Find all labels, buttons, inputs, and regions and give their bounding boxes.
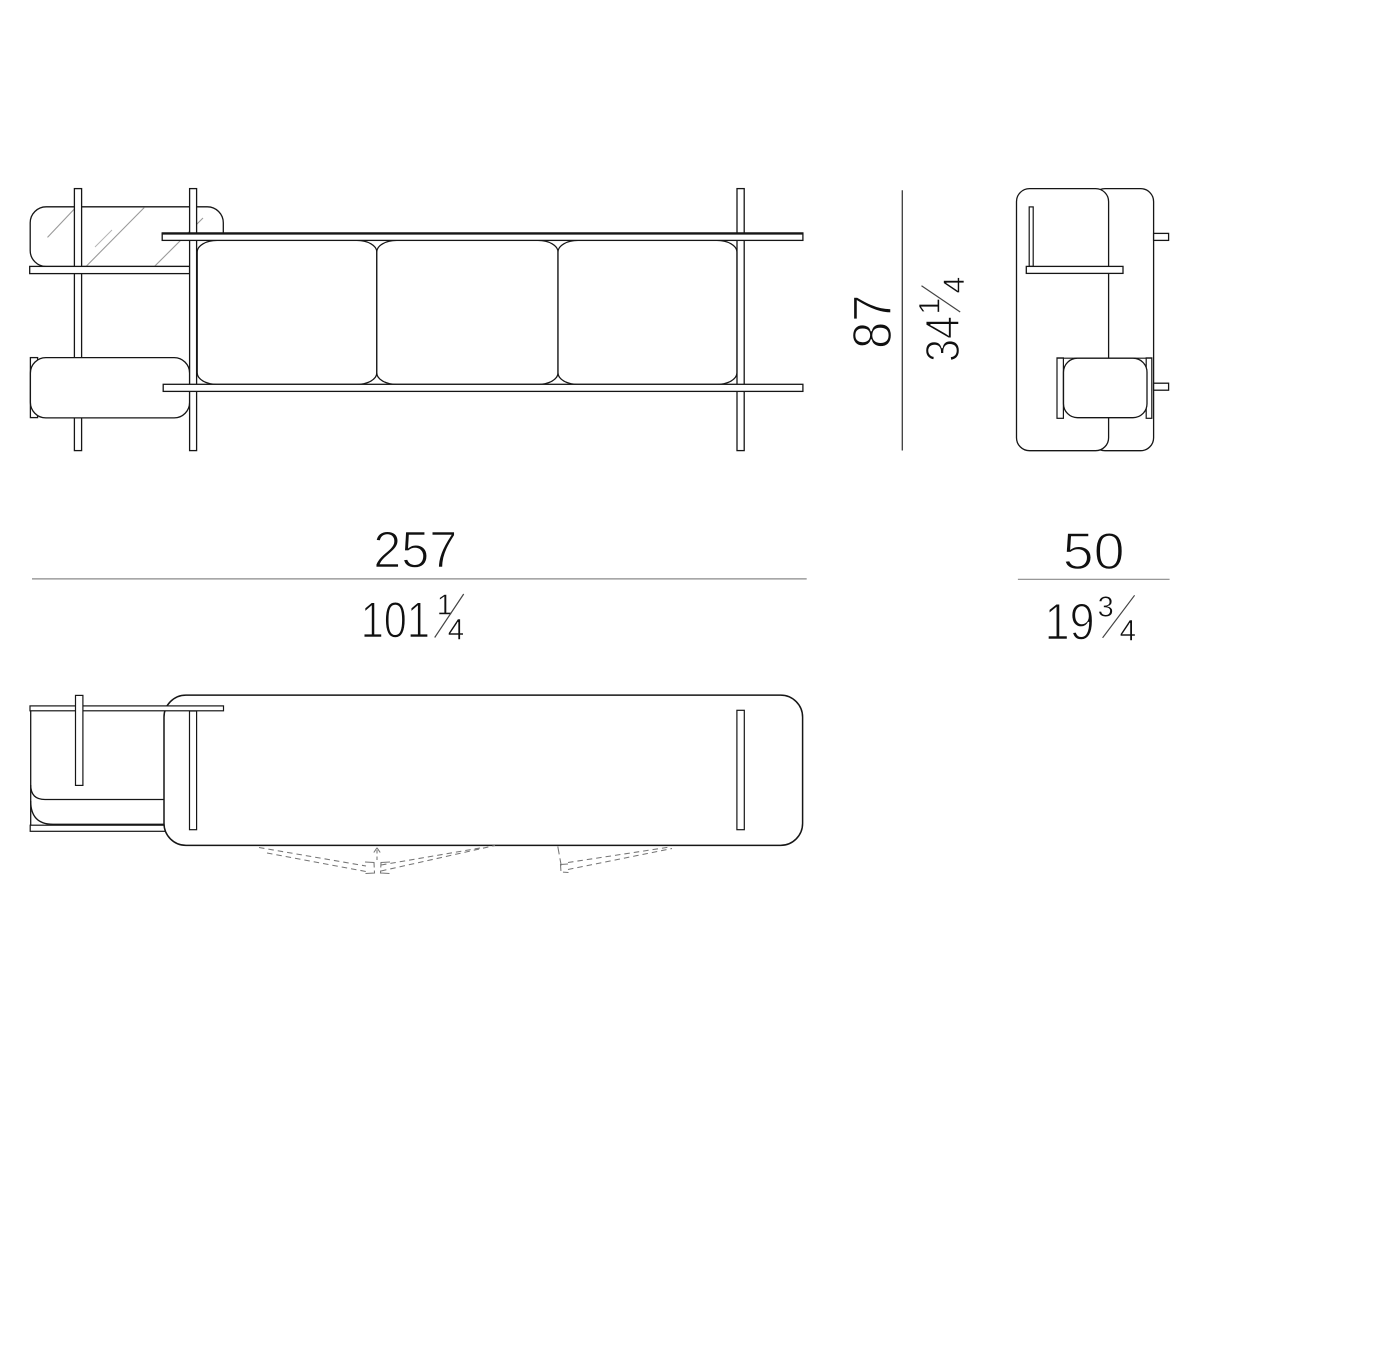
svg-text:4: 4 — [1120, 614, 1136, 647]
svg-text:101: 101 — [361, 592, 430, 649]
svg-text:50: 50 — [1063, 523, 1125, 581]
svg-text:19: 19 — [1045, 593, 1095, 651]
svg-text:3: 3 — [1098, 592, 1114, 624]
svg-text:4: 4 — [938, 277, 971, 294]
svg-text:1: 1 — [914, 298, 947, 315]
svg-text:34: 34 — [917, 316, 970, 362]
svg-text:4: 4 — [448, 614, 464, 647]
svg-text:87: 87 — [841, 295, 903, 349]
svg-text:257: 257 — [373, 522, 457, 580]
